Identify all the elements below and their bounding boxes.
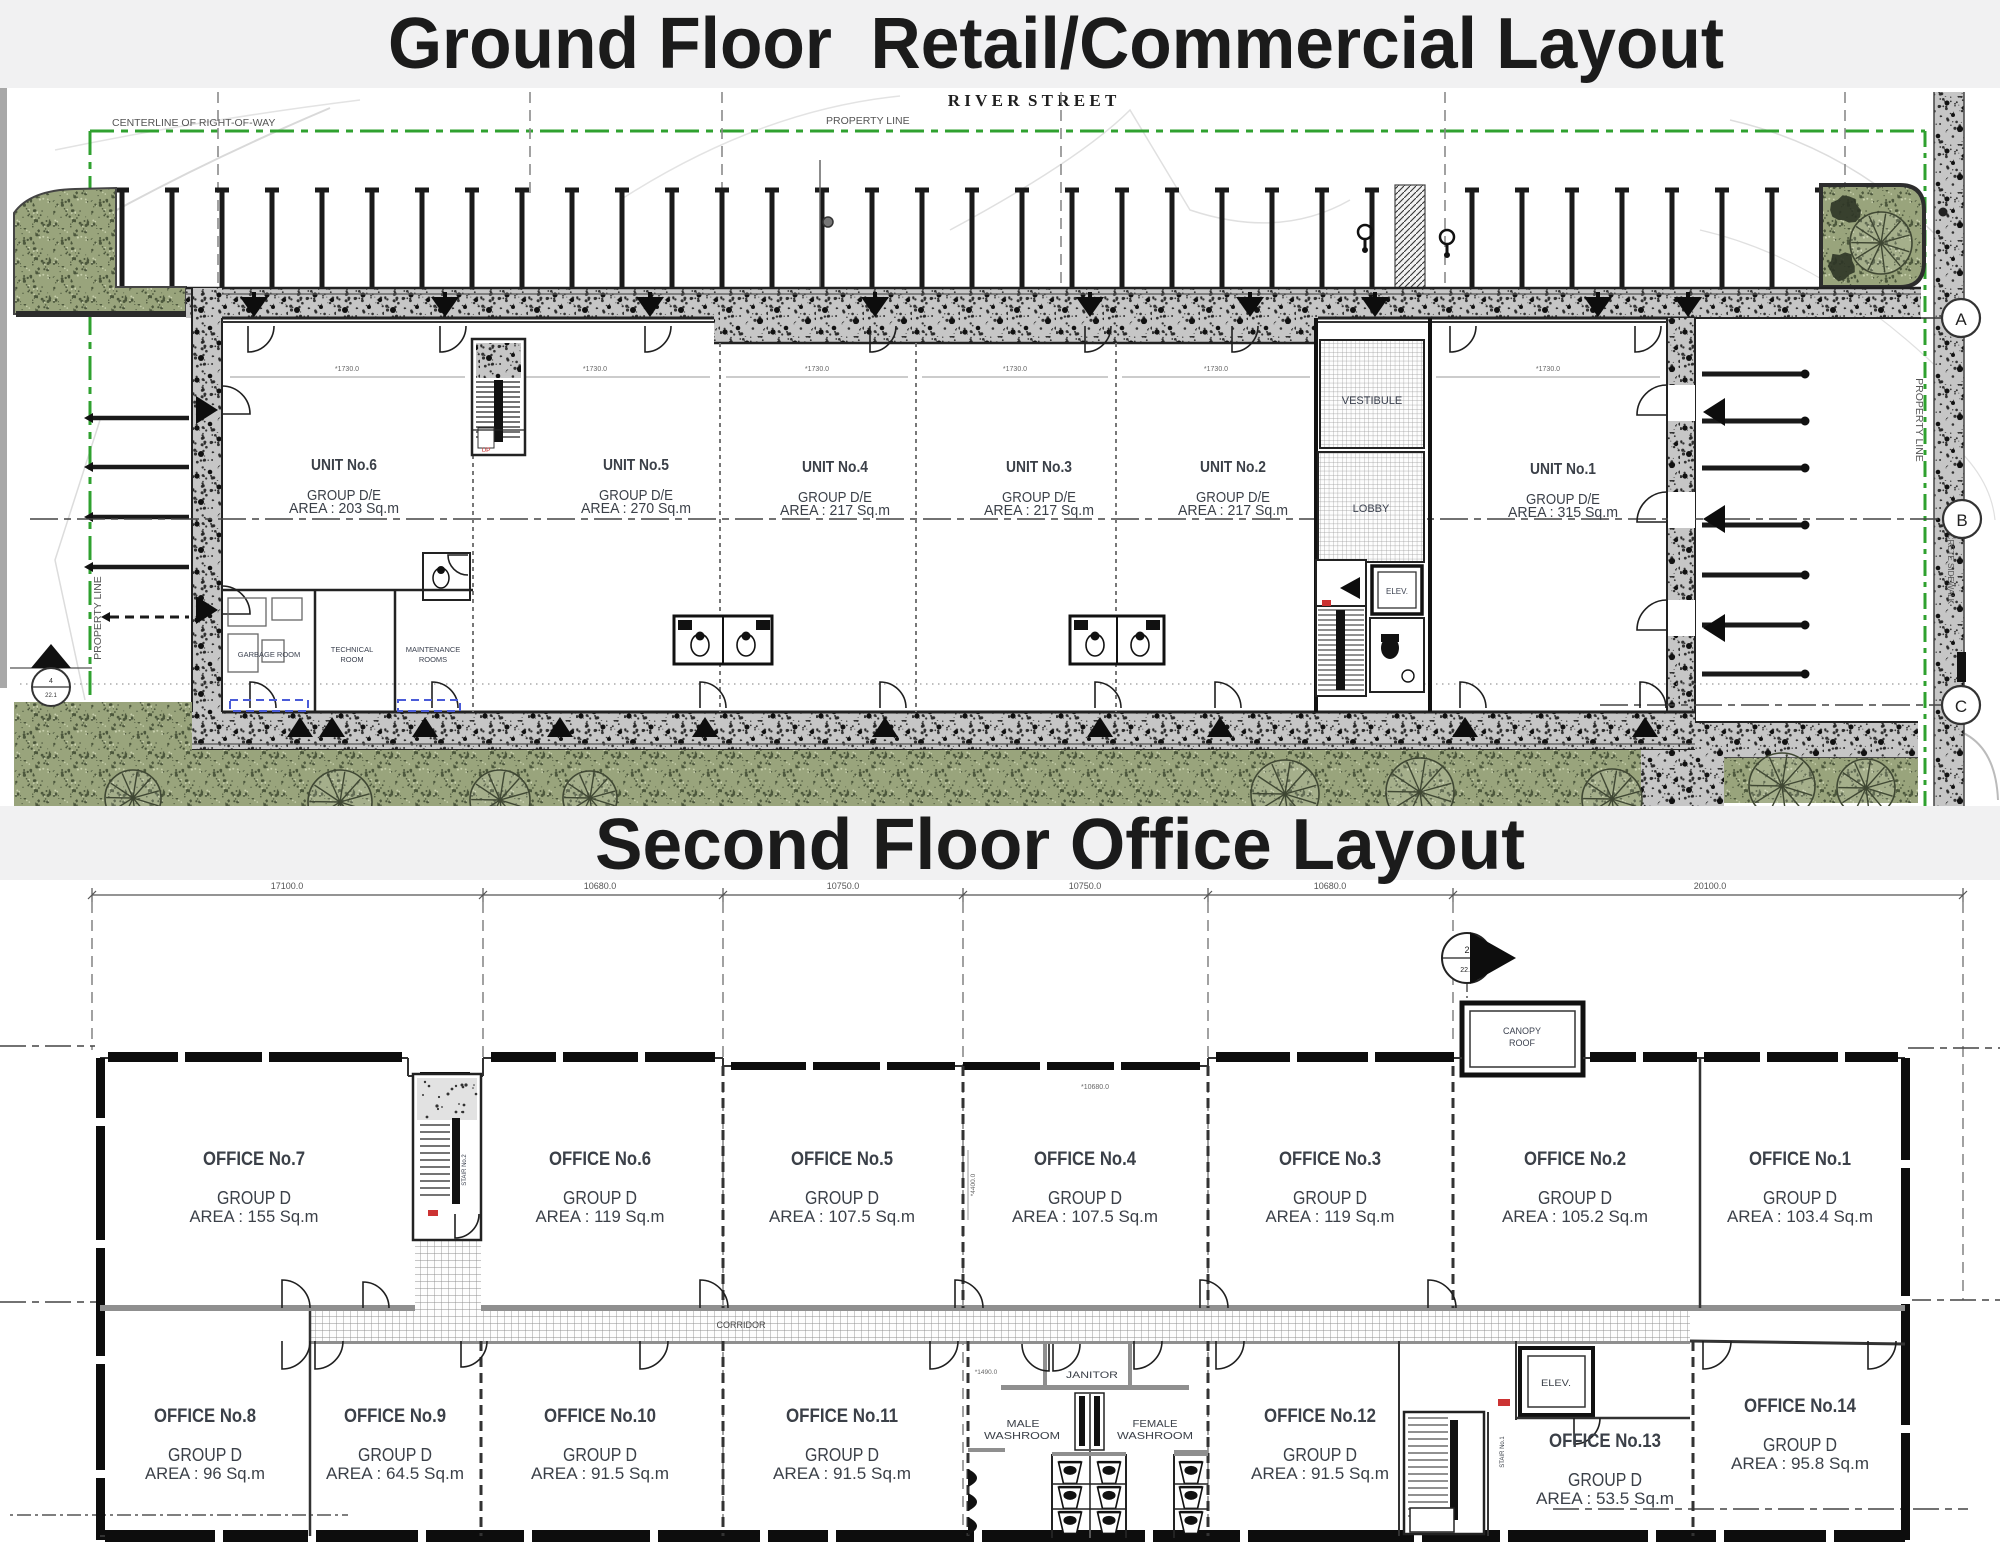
svg-text:C: C xyxy=(1955,697,1967,716)
svg-text:*1490.0: *1490.0 xyxy=(975,1369,998,1376)
svg-text:ROOF: ROOF xyxy=(1509,1038,1536,1048)
svg-text:LOBBY: LOBBY xyxy=(1353,503,1390,515)
svg-text:OFFICE No.3: OFFICE No.3 xyxy=(1279,1149,1381,1170)
svg-text:STAIR No.2: STAIR No.2 xyxy=(462,1154,468,1186)
svg-text:FEMALE: FEMALE xyxy=(1133,1419,1178,1430)
svg-text:4: 4 xyxy=(49,678,53,685)
svg-text:*1730.0: *1730.0 xyxy=(335,366,359,373)
svg-text:*1730.0: *1730.0 xyxy=(583,366,607,373)
svg-text:AREA : 105.2 Sq.m: AREA : 105.2 Sq.m xyxy=(1502,1207,1648,1226)
svg-text:STAIR No.1: STAIR No.1 xyxy=(1500,1436,1506,1468)
svg-text:OFFICE No.12: OFFICE No.12 xyxy=(1264,1406,1376,1427)
svg-text:AREA : 315 Sq.m: AREA : 315 Sq.m xyxy=(1508,504,1618,521)
svg-text:ELEV.: ELEV. xyxy=(1386,587,1408,596)
svg-text:10750.0: 10750.0 xyxy=(1069,881,1102,891)
svg-text:ROOMS: ROOMS xyxy=(419,655,447,664)
svg-text:Second Floor Office Layout: Second Floor Office Layout xyxy=(595,805,1525,885)
svg-text:AREA : 107.5 Sq.m: AREA : 107.5 Sq.m xyxy=(769,1207,915,1226)
svg-text:GROUP D: GROUP D xyxy=(1763,1435,1837,1455)
svg-text:CANOPY: CANOPY xyxy=(1503,1026,1541,1036)
svg-text:WASHROOM: WASHROOM xyxy=(1117,1431,1193,1442)
svg-text:AREA : 119 Sq.m: AREA : 119 Sq.m xyxy=(1266,1207,1395,1226)
svg-text:GROUP D: GROUP D xyxy=(168,1445,242,1465)
svg-text:OFFICE No.11: OFFICE No.11 xyxy=(786,1406,898,1427)
svg-text:UNIT No.5: UNIT No.5 xyxy=(603,457,669,474)
svg-text:TECHNICAL: TECHNICAL xyxy=(331,645,374,654)
svg-text:OFFICE No.2: OFFICE No.2 xyxy=(1524,1149,1626,1170)
svg-text:PROPERTY LINE: PROPERTY LINE xyxy=(826,115,910,127)
svg-text:VESTIBULE: VESTIBULE xyxy=(1342,395,1403,407)
svg-text:GROUP D: GROUP D xyxy=(1293,1188,1367,1208)
svg-text:OFFICE No.6: OFFICE No.6 xyxy=(549,1149,651,1170)
svg-text:ELEV.: ELEV. xyxy=(1541,1378,1571,1388)
svg-text:UNIT No.3: UNIT No.3 xyxy=(1006,459,1072,476)
svg-text:AREA : 270 Sq.m: AREA : 270 Sq.m xyxy=(581,500,691,517)
svg-text:OFFICE No.14: OFFICE No.14 xyxy=(1744,1396,1856,1417)
svg-text:A: A xyxy=(1955,310,1967,329)
svg-text:AREA : 155 Sq.m: AREA : 155 Sq.m xyxy=(190,1207,319,1226)
svg-text:*1730.0: *1730.0 xyxy=(1536,366,1560,373)
svg-text:CENTERLINE OF RIGHT-OF-WAY: CENTERLINE OF RIGHT-OF-WAY xyxy=(112,117,275,129)
svg-text:R I V E R S T R E E T: R I V E R S T R E E T xyxy=(948,91,1117,110)
svg-text:B: B xyxy=(1956,511,1967,530)
svg-text:PROPERTY LINE: PROPERTY LINE xyxy=(92,576,104,660)
svg-text:*1730.0: *1730.0 xyxy=(1003,366,1027,373)
svg-text:OFFICE No.13: OFFICE No.13 xyxy=(1549,1431,1661,1452)
svg-text:OFFICE No.10: OFFICE No.10 xyxy=(544,1406,656,1427)
svg-text:10680.0: 10680.0 xyxy=(1314,881,1347,891)
svg-text:GROUP D: GROUP D xyxy=(563,1445,637,1465)
svg-text:AREA : 119 Sq.m: AREA : 119 Sq.m xyxy=(536,1207,665,1226)
svg-text:GROUP D: GROUP D xyxy=(1568,1470,1642,1490)
svg-text:GROUP D: GROUP D xyxy=(805,1445,879,1465)
svg-text:AREA : 217 Sq.m: AREA : 217 Sq.m xyxy=(780,502,890,519)
svg-text:OFFICE No.9: OFFICE No.9 xyxy=(344,1406,446,1427)
svg-text:AREA : 53.5 Sq.m: AREA : 53.5 Sq.m xyxy=(1536,1489,1674,1508)
svg-text:OFFICE No.7: OFFICE No.7 xyxy=(203,1149,305,1170)
svg-text:GROUP D: GROUP D xyxy=(358,1445,432,1465)
svg-text:AREA : 91.5 Sq.m: AREA : 91.5 Sq.m xyxy=(1251,1464,1389,1483)
svg-text:ROOM: ROOM xyxy=(340,655,363,664)
svg-text:17100.0: 17100.0 xyxy=(271,881,304,891)
svg-text:GROUP D: GROUP D xyxy=(1048,1188,1122,1208)
svg-text:AREA : 217 Sq.m: AREA : 217 Sq.m xyxy=(1178,502,1288,519)
svg-text:UNIT No.2: UNIT No.2 xyxy=(1200,459,1266,476)
svg-text:OFFICE No.8: OFFICE No.8 xyxy=(154,1406,256,1427)
svg-text:GROUP D: GROUP D xyxy=(805,1188,879,1208)
svg-text:CORRIDOR: CORRIDOR xyxy=(717,1320,766,1330)
svg-text:AREA : 91.5 Sq.m: AREA : 91.5 Sq.m xyxy=(531,1464,669,1483)
svg-text:GROUP D: GROUP D xyxy=(1763,1188,1837,1208)
svg-text:GROUP D: GROUP D xyxy=(1538,1188,1612,1208)
svg-text:Ground Floor Retail/Commercia: Ground Floor Retail/Commercial Layout xyxy=(388,4,1724,84)
svg-text:10750.0: 10750.0 xyxy=(827,881,860,891)
svg-text:JANITOR: JANITOR xyxy=(1066,1370,1118,1381)
svg-text:20100.0: 20100.0 xyxy=(1694,881,1727,891)
svg-text:PROPERTY LINE: PROPERTY LINE xyxy=(1913,378,1925,462)
svg-text:UNIT No.4: UNIT No.4 xyxy=(802,459,868,476)
svg-text:*1730.0: *1730.0 xyxy=(1204,366,1228,373)
svg-text:2: 2 xyxy=(1464,945,1469,955)
svg-text:UP: UP xyxy=(481,447,490,454)
svg-text:GARBAGE ROOM: GARBAGE ROOM xyxy=(238,650,301,659)
svg-text:UNIT No.6: UNIT No.6 xyxy=(311,457,377,474)
svg-text:22.1: 22.1 xyxy=(45,693,57,699)
svg-text:AREA : 95.8 Sq.m: AREA : 95.8 Sq.m xyxy=(1731,1454,1869,1473)
svg-text:GROUP D: GROUP D xyxy=(1283,1445,1357,1465)
svg-text:GROUP D: GROUP D xyxy=(563,1188,637,1208)
svg-text:AREA : 103.4 Sq.m: AREA : 103.4 Sq.m xyxy=(1727,1207,1873,1226)
svg-text:OFFICE No.4: OFFICE No.4 xyxy=(1034,1149,1136,1170)
svg-text:WASHROOM: WASHROOM xyxy=(984,1431,1060,1442)
svg-text:*4400.0: *4400.0 xyxy=(970,1173,977,1196)
svg-text:*1730.0: *1730.0 xyxy=(805,366,829,373)
svg-text:UNIT No.1: UNIT No.1 xyxy=(1530,461,1596,478)
svg-text:AREA : 64.5 Sq.m: AREA : 64.5 Sq.m xyxy=(326,1464,464,1483)
svg-text:OFFICE No.5: OFFICE No.5 xyxy=(791,1149,893,1170)
svg-text:*10680.0: *10680.0 xyxy=(1081,1084,1109,1091)
svg-text:MAINTENANCE: MAINTENANCE xyxy=(406,645,461,654)
svg-text:MALE: MALE xyxy=(1007,1419,1040,1430)
svg-text:AREA : 96 Sq.m: AREA : 96 Sq.m xyxy=(145,1464,265,1483)
svg-text:AREA : 217 Sq.m: AREA : 217 Sq.m xyxy=(984,502,1094,519)
svg-text:GROUP D: GROUP D xyxy=(217,1188,291,1208)
svg-text:10680.0: 10680.0 xyxy=(584,881,617,891)
svg-text:AREA : 91.5 Sq.m: AREA : 91.5 Sq.m xyxy=(773,1464,911,1483)
svg-text:AREA : 107.5 Sq.m: AREA : 107.5 Sq.m xyxy=(1012,1207,1158,1226)
svg-text:AREA : 203 Sq.m: AREA : 203 Sq.m xyxy=(289,500,399,517)
svg-text:OFFICE No.1: OFFICE No.1 xyxy=(1749,1149,1851,1170)
